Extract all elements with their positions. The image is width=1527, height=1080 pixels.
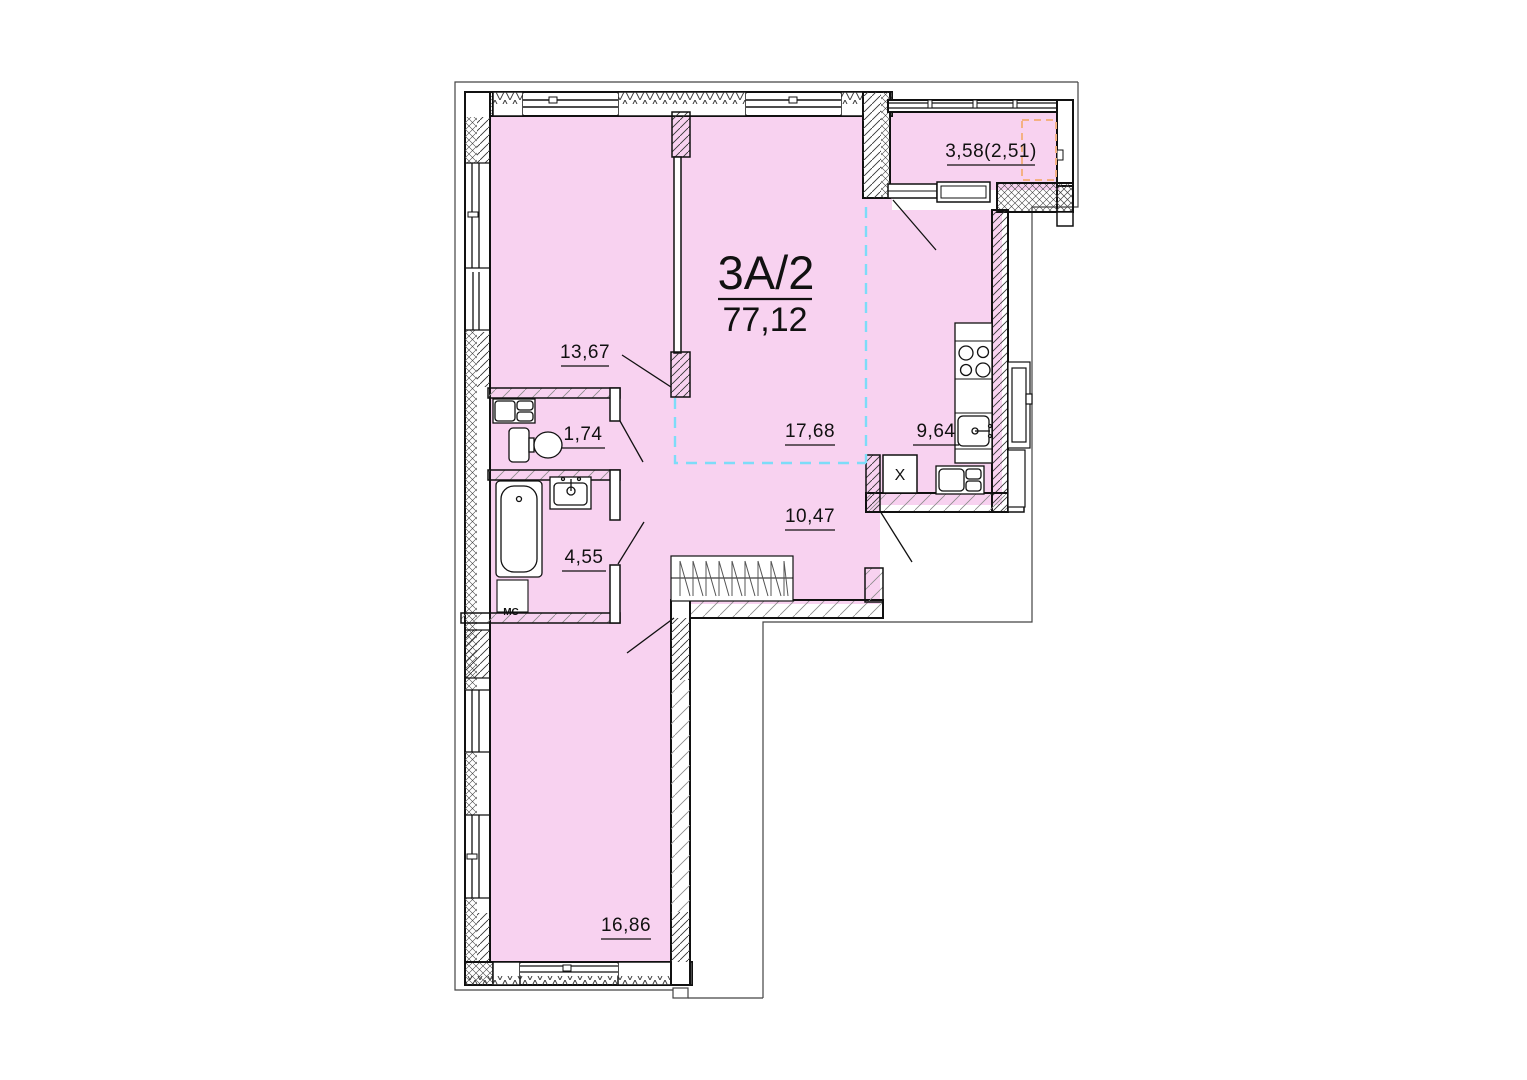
area-wc: 1,74	[564, 424, 603, 445]
area-bedroom: 16,86	[601, 915, 651, 936]
floor-plan-canvas: 3А/2 77,12 13,67 1,74 4,55 17,68 9,64 10…	[0, 0, 1527, 1080]
window-left-2	[466, 272, 490, 330]
vent-shaft-label: Х	[895, 467, 906, 484]
wc-sink-unit	[493, 399, 535, 423]
window-top-2	[746, 94, 841, 115]
unit-title: 3А/2	[718, 246, 815, 299]
bathtub	[496, 481, 542, 577]
area-hallway: 10,47	[785, 506, 835, 527]
window-bottom	[520, 964, 618, 976]
window-left-1	[466, 163, 490, 268]
kitchen-washer-unit	[936, 466, 984, 494]
kitchen-sink	[958, 416, 992, 446]
area-bathroom: 4,55	[565, 547, 604, 568]
washing-machine-label: МС	[503, 607, 519, 618]
area-kitchen-zone: 9,64	[917, 421, 956, 442]
balcony-door-window	[888, 182, 990, 202]
window-left-4	[466, 815, 490, 898]
area-balcony: 3,58(2,51)	[945, 141, 1037, 162]
area-room-top-left: 13,67	[560, 342, 610, 363]
floor-plan: 3А/2 77,12 13,67 1,74 4,55 17,68 9,64 10…	[0, 0, 1527, 1080]
door-entrance	[880, 511, 912, 562]
unit-total-area: 77,12	[722, 301, 807, 339]
apartment-interior	[487, 106, 1060, 970]
window-top-1	[523, 94, 618, 115]
area-living-zone: 17,68	[785, 421, 835, 442]
washbasin	[550, 477, 591, 509]
window-left-3	[466, 690, 490, 752]
wardrobe	[671, 556, 793, 601]
adjacent-shafts	[1008, 362, 1032, 507]
